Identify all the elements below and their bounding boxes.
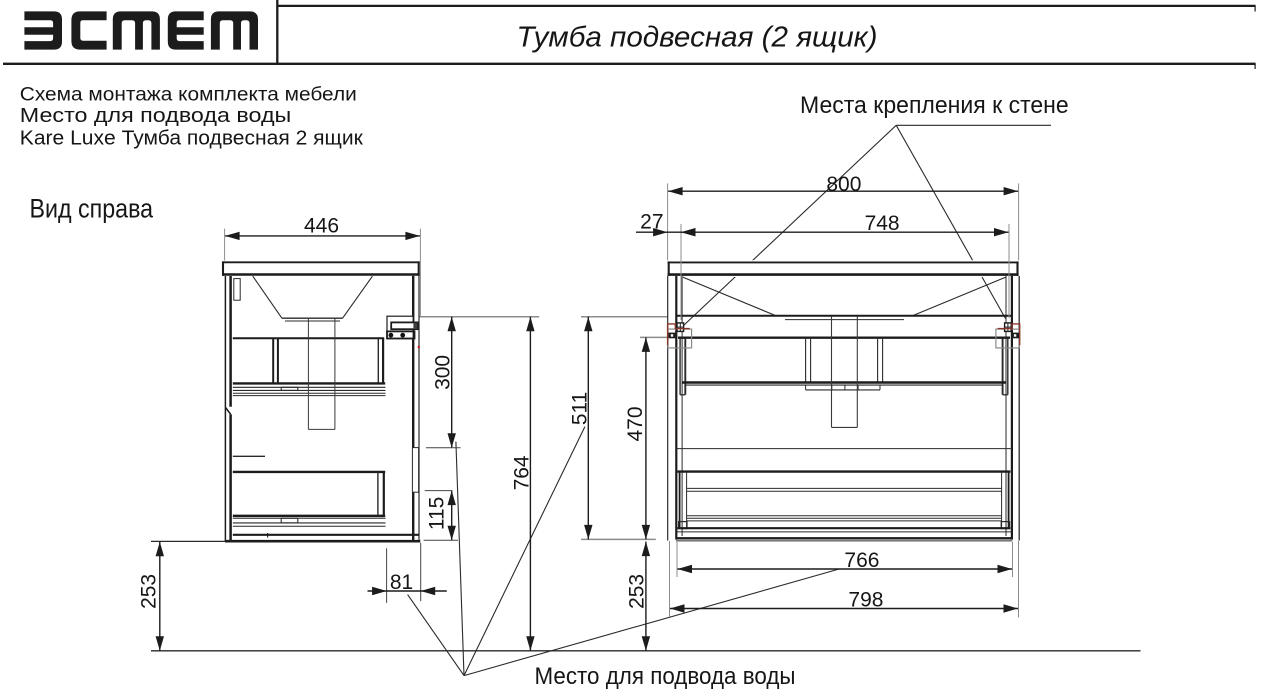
svg-text:748: 748 [865, 212, 900, 235]
svg-text:253: 253 [625, 574, 648, 609]
svg-text:300: 300 [431, 355, 454, 390]
svg-text:Места крепления к стене: Места крепления к стене [800, 92, 1069, 119]
svg-text:Схема монтажа комплекта мебели: Схема монтажа комплекта мебели [20, 85, 357, 106]
svg-text:Место для подвода воды: Место для подвода воды [20, 105, 292, 127]
svg-text:81: 81 [390, 571, 413, 594]
svg-text:446: 446 [304, 214, 339, 237]
svg-text:470: 470 [624, 406, 647, 441]
svg-text:Kare Luxe Тумба подвесная 2 ящ: Kare Luxe Тумба подвесная 2 ящик [20, 128, 363, 150]
svg-text:Тумба подвесная (2 ящик): Тумба подвесная (2 ящик) [517, 22, 878, 54]
svg-text:800: 800 [826, 173, 861, 196]
svg-text:115: 115 [426, 497, 449, 530]
svg-text:Место для подвода воды: Место для подвода воды [535, 663, 796, 690]
svg-text:766: 766 [844, 549, 879, 572]
svg-text:253: 253 [137, 574, 160, 609]
svg-text:511: 511 [569, 392, 592, 425]
svg-text:27: 27 [640, 210, 663, 233]
svg-text:Вид справа: Вид справа [30, 193, 154, 223]
svg-text:764: 764 [510, 455, 533, 490]
svg-text:798: 798 [848, 588, 883, 611]
